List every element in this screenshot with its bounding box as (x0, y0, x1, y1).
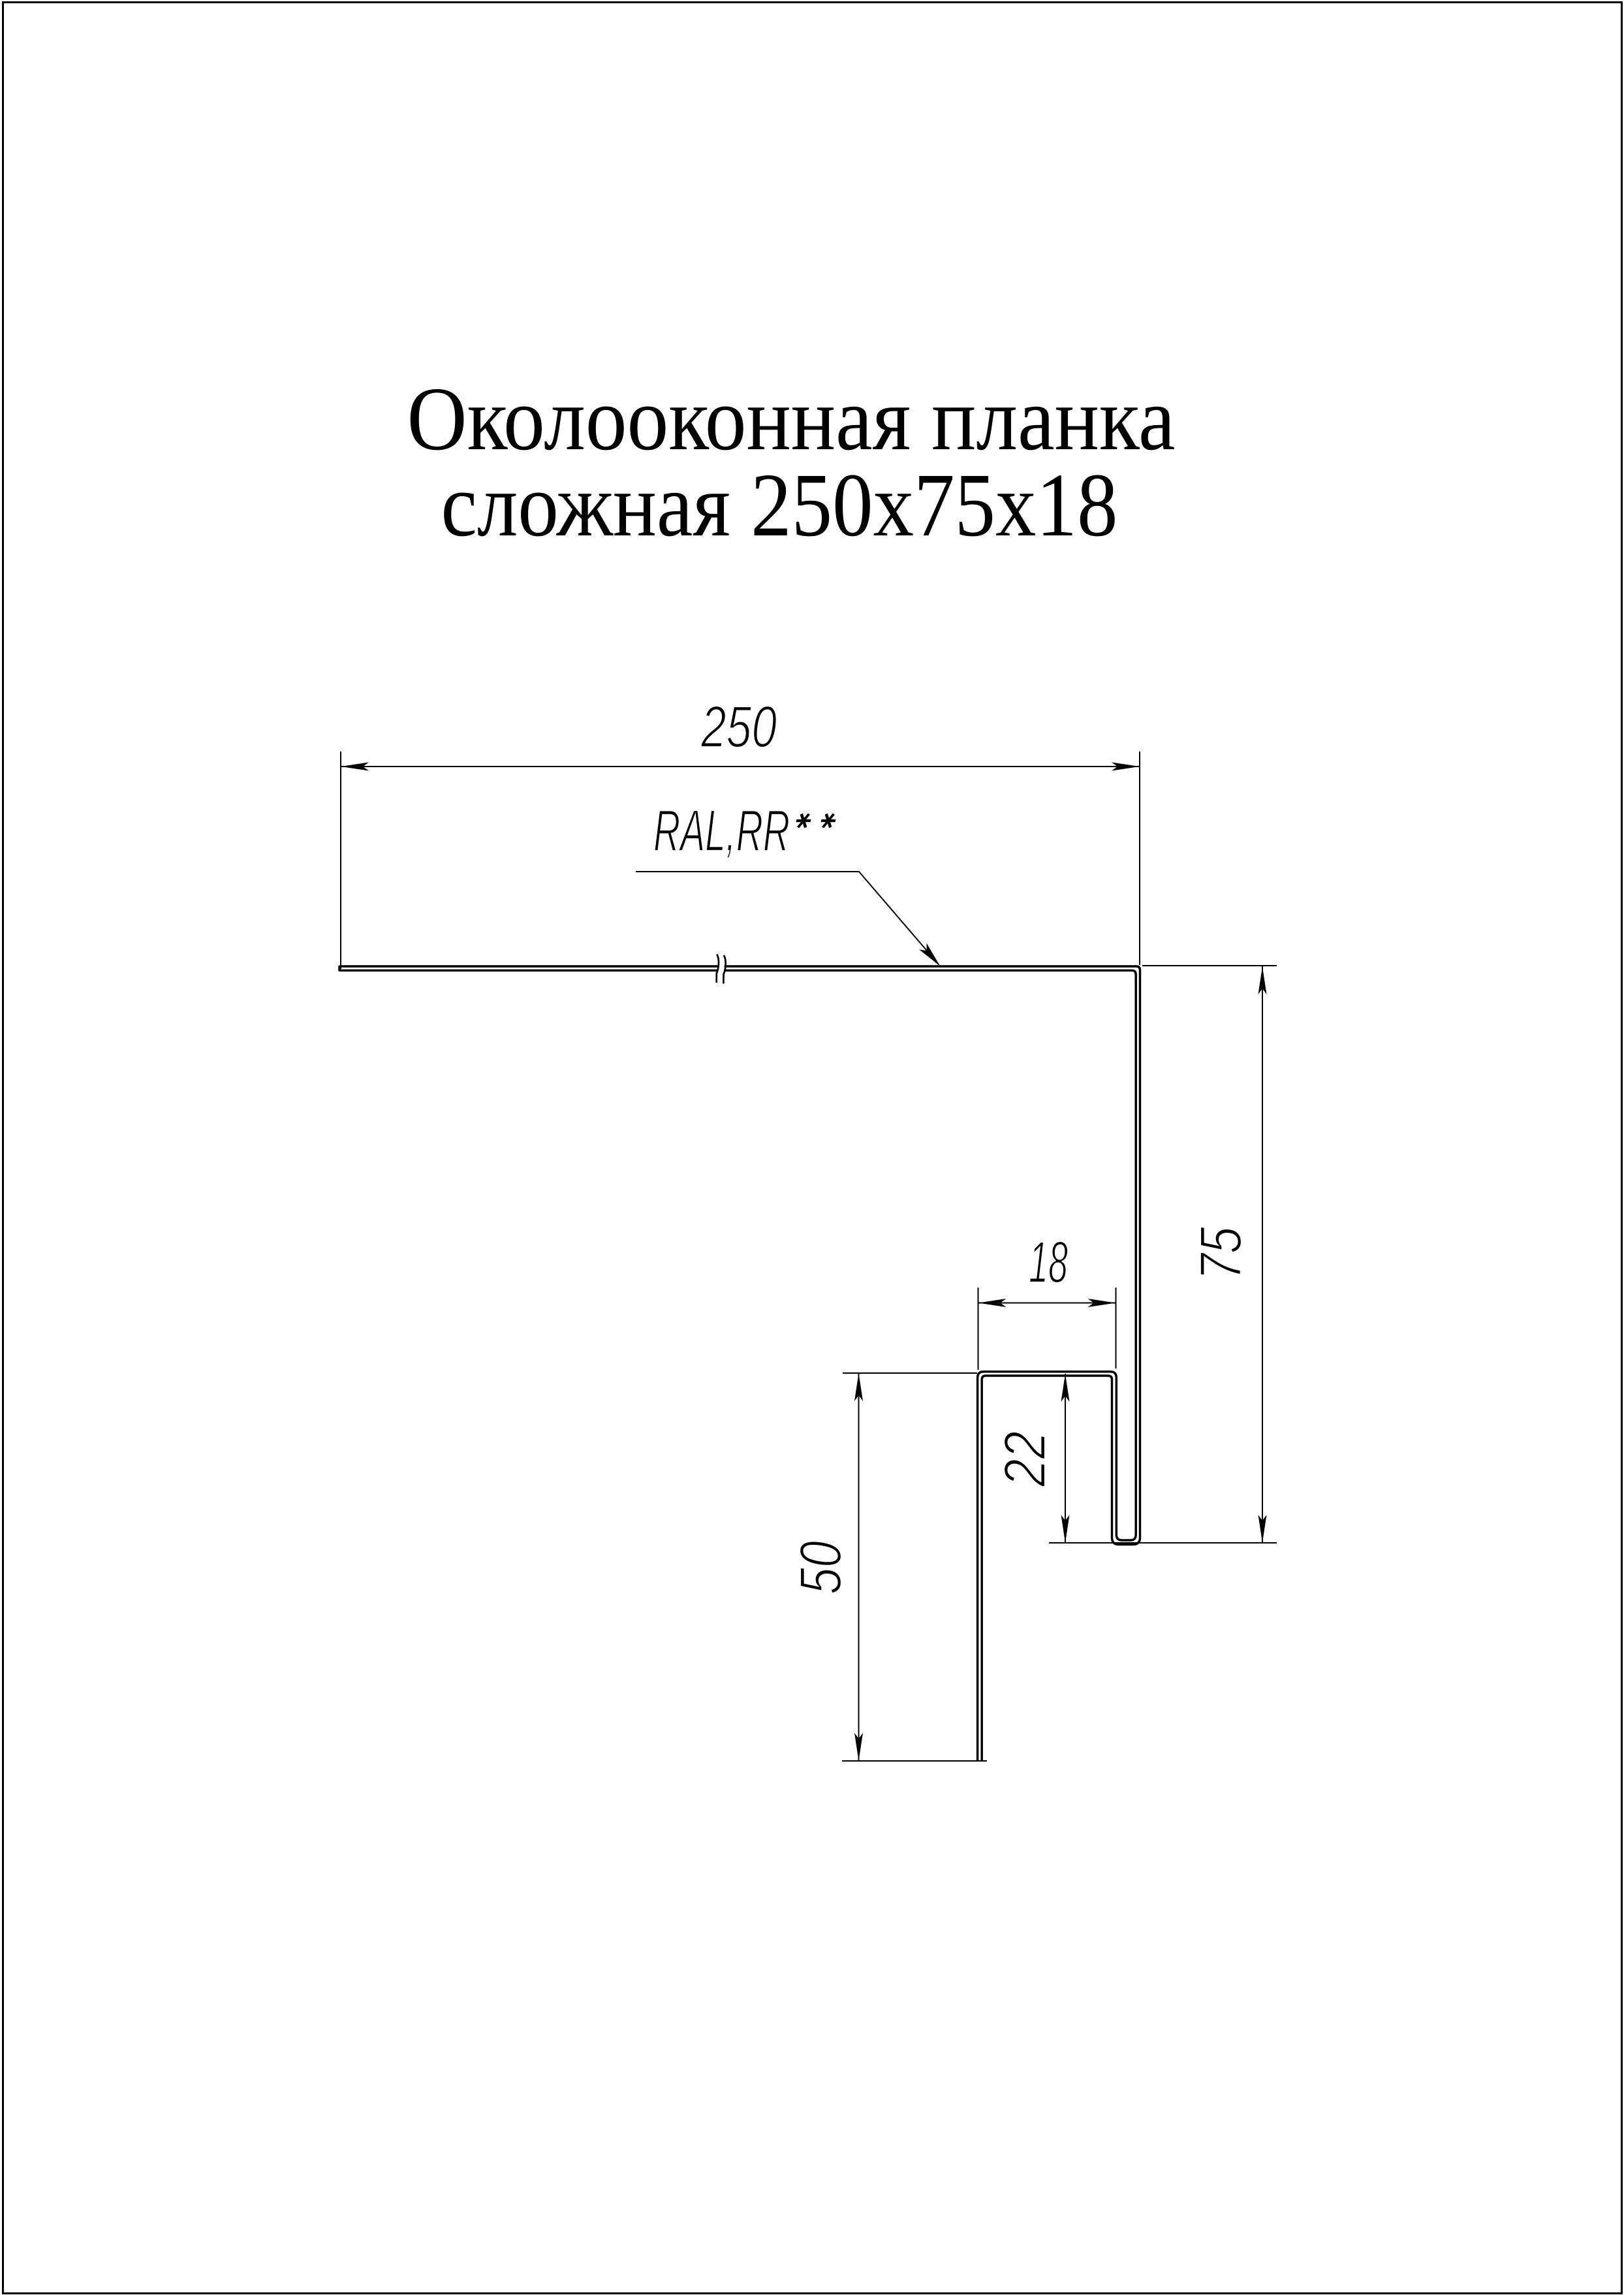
svg-text:75: 75 (1189, 1226, 1254, 1280)
svg-text:RAL,RR: RAL,RR (653, 799, 790, 864)
svg-text:сложная 250х75х18: сложная 250х75х18 (441, 455, 1118, 556)
svg-text:Околооконная планка: Околооконная планка (407, 369, 1176, 469)
svg-text:22: 22 (993, 1431, 1058, 1487)
svg-text:50: 50 (789, 1541, 854, 1594)
svg-text:250: 250 (700, 695, 777, 760)
svg-text:18: 18 (1029, 1230, 1068, 1295)
